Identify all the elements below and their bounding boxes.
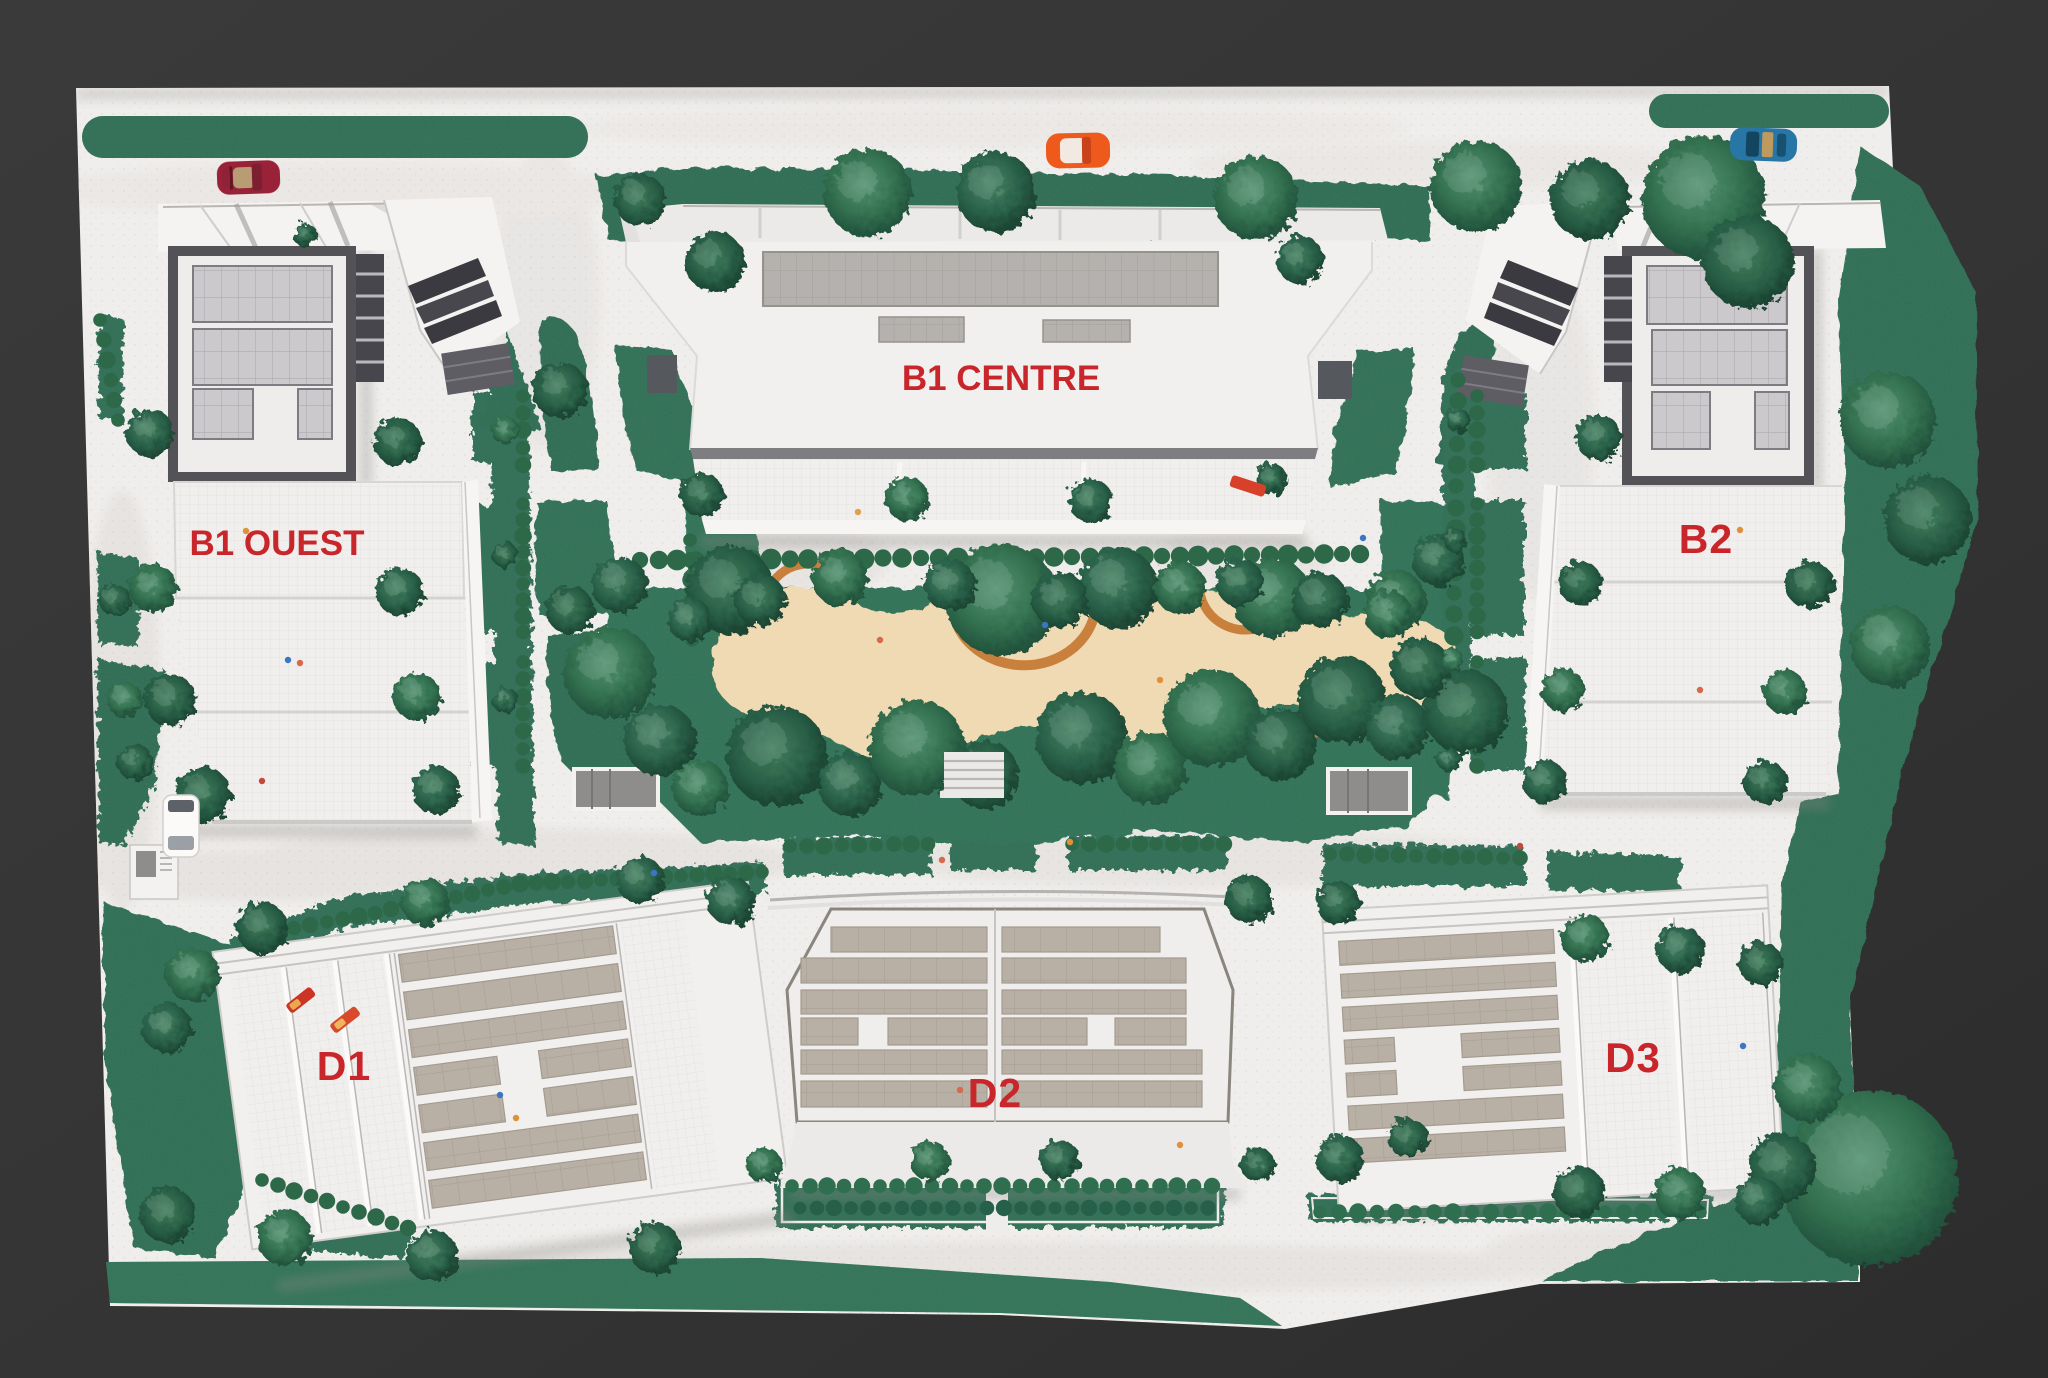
svg-text:B2: B2 (1679, 516, 1733, 562)
svg-text:D1: D1 (317, 1043, 371, 1089)
svg-text:B1 CENTRE: B1 CENTRE (902, 359, 1100, 398)
svg-text:D3: D3 (1605, 1034, 1661, 1081)
svg-text:D2: D2 (968, 1070, 1022, 1116)
svg-text:B1 OUEST: B1 OUEST (189, 524, 364, 563)
